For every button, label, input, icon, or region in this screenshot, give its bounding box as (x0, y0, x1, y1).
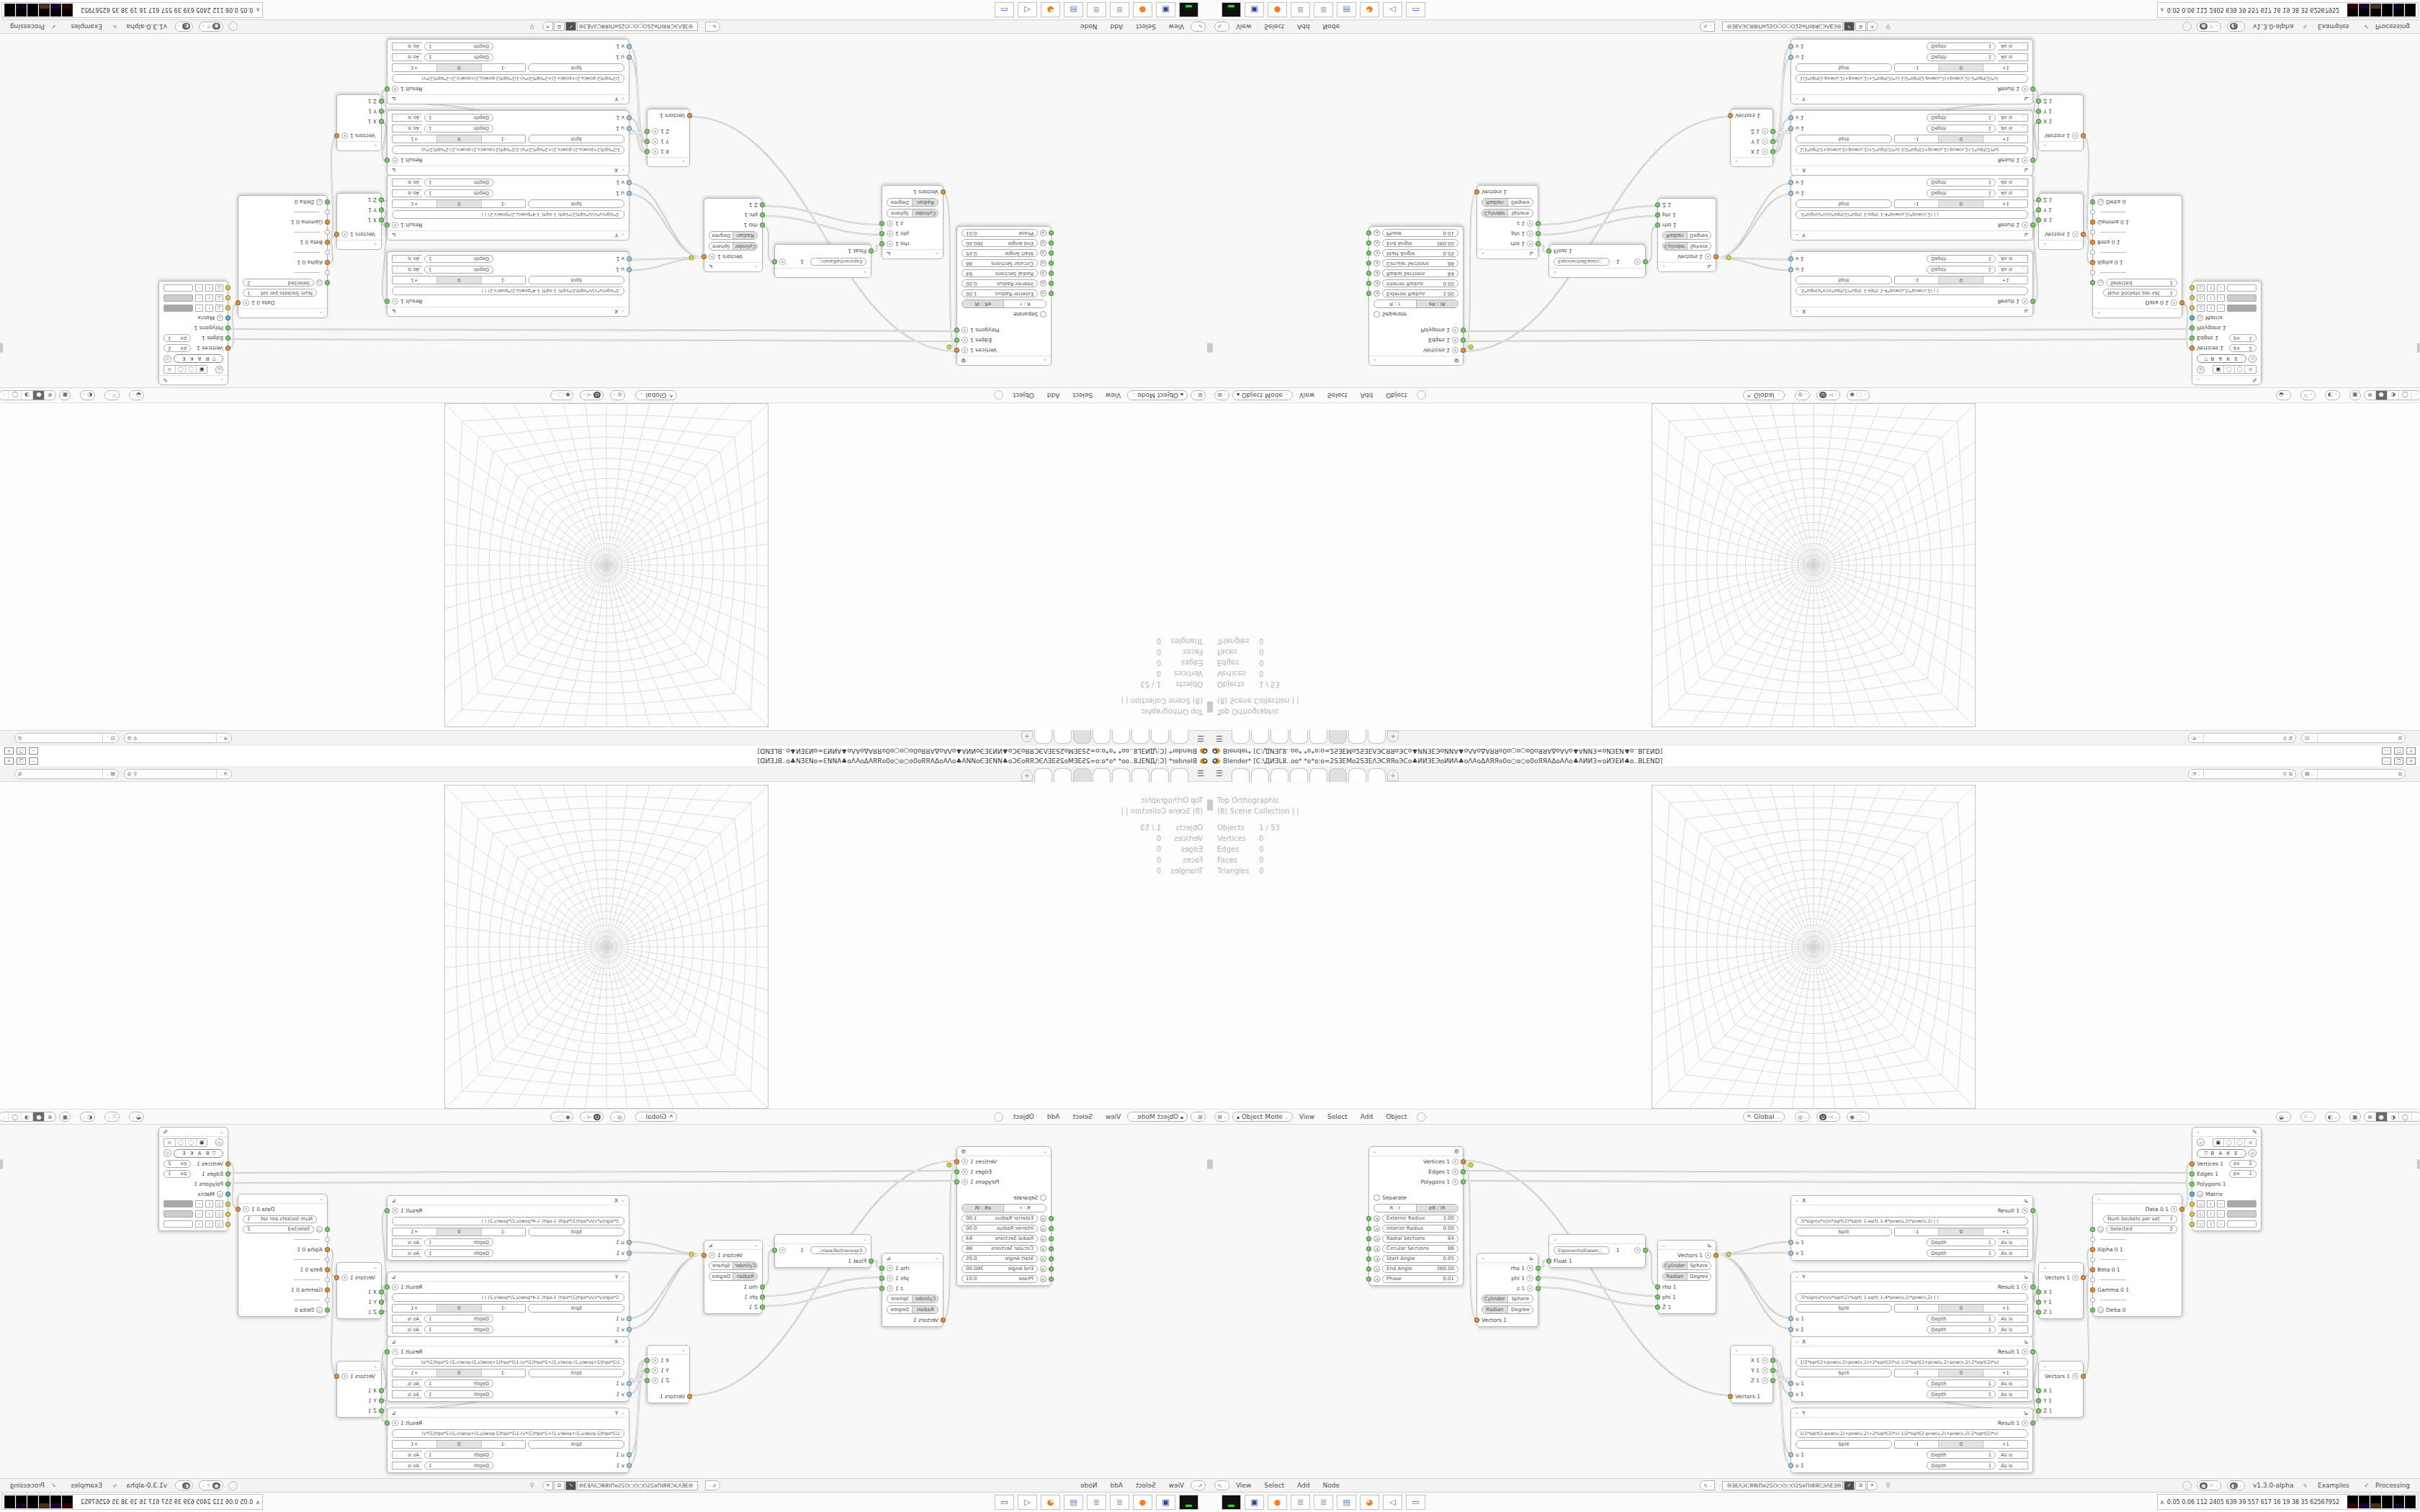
orange-socket[interactable] (702, 1253, 707, 1258)
editor-type-button[interactable]: ⊞⌄ (1191, 390, 1206, 400)
orange-socket[interactable] (2190, 1161, 2195, 1166)
green-socket[interactable] (2036, 1408, 2041, 1413)
menu-select[interactable]: Select (1129, 23, 1162, 30)
node-header[interactable]: ⌄Y⊾ (1791, 230, 2033, 240)
node-header[interactable]: ⌄ (337, 1263, 381, 1272)
node-header[interactable]: ⌄✎ (2192, 375, 2261, 384)
green-socket[interactable] (2090, 281, 2095, 286)
node-tree-name-field[interactable]: ΘЗЕΛЭСЯЯΙΠ¤2SO○O○O2S¤ΠΙЯЯСЭΛЕЗΘ (577, 22, 698, 32)
orange-socket[interactable] (2190, 346, 2195, 351)
formula-node-y-lower[interactable]: ⌄Y⊾Result 1▾1/2*sqrt(2-pow(u,2)+pow(v,2)… (1791, 1408, 2033, 1473)
add-workspace-button[interactable]: + (1387, 770, 1399, 781)
orange-socket[interactable] (2090, 261, 2095, 266)
orange-socket[interactable] (325, 1247, 330, 1252)
workspace-tab-1[interactable] (1170, 768, 1188, 782)
hollow-socket[interactable] (2090, 1237, 2095, 1242)
yellow-socket[interactable] (2190, 1212, 2195, 1217)
parent-tree-icon[interactable] (2182, 1481, 2192, 1490)
formula-node-x-upper[interactable]: ⌄X⊾Result 1▾.5*sign(u*v)/v*sqrt(2)*sqrt(… (1791, 1195, 2033, 1261)
minimize-button[interactable]: — (2382, 757, 2391, 765)
green-socket[interactable] (1655, 1305, 1660, 1310)
green-socket[interactable] (1366, 271, 1371, 276)
pin-icon[interactable]: ⚲ (529, 23, 534, 30)
orange-socket[interactable] (325, 1287, 330, 1292)
orange-socket[interactable] (334, 233, 339, 238)
menu-select[interactable]: Select (1066, 1113, 1099, 1120)
menu-select[interactable]: Select (1129, 1482, 1162, 1489)
green-socket[interactable] (2190, 326, 2195, 331)
workspace-tab-7[interactable] (1348, 768, 1366, 782)
green-socket[interactable] (645, 130, 650, 135)
fake-user-shield-button[interactable]: ✓ (1844, 1481, 1855, 1490)
workspace-tab-6[interactable] (1073, 730, 1091, 744)
workspace-tab-8[interactable] (1368, 768, 1386, 782)
hollow-socket[interactable] (2090, 230, 2095, 235)
blue-socket[interactable] (1788, 1251, 1793, 1256)
node-header[interactable]: ⌄ (2093, 1194, 2182, 1204)
blue-socket[interactable] (627, 256, 632, 261)
workspace-tab-7[interactable] (1348, 730, 1366, 744)
orange-socket[interactable] (2081, 1374, 2086, 1379)
parent-tree-icon[interactable] (2182, 22, 2192, 32)
green-socket[interactable] (760, 1284, 765, 1290)
reroute-dot[interactable] (1726, 1252, 1731, 1256)
taskbar-icon-notepad[interactable]: ≣ (1314, 1495, 1333, 1510)
examples-menu[interactable]: Examples (71, 23, 102, 30)
transform-orientation[interactable]: ⇱Global⌄ (1743, 1112, 1785, 1122)
orange-socket[interactable] (334, 134, 339, 139)
menu-select[interactable]: Select (1321, 392, 1354, 399)
menu-view[interactable]: View (1162, 23, 1191, 30)
workspace-tab-5[interactable] (1309, 768, 1327, 782)
data-switch-node[interactable]: ⌄Data 0 1▾Num Sockets per set1◷Selected2… (238, 195, 328, 318)
taskbar-icon-blender[interactable]: ◕ (1041, 2, 1060, 17)
hollow-socket[interactable] (2090, 1257, 2095, 1262)
yellow-socket[interactable] (225, 1212, 230, 1217)
blue-socket[interactable] (627, 1316, 632, 1321)
vector-in-node-upper[interactable]: ⌄Vectors 1▾X 1Y 1Z 1 (2038, 193, 2084, 250)
green-socket[interactable] (1366, 251, 1371, 256)
search-icon[interactable] (994, 1112, 1003, 1122)
pivot-point-button[interactable]: ◎⌄ (610, 390, 625, 400)
show-gizmo-button[interactable]: ◒⌄ (2276, 390, 2291, 400)
green-socket[interactable] (645, 1368, 650, 1373)
viewer-draw-node[interactable]: ⌄✎◎▣◯◯⊘▽B A K E⊙Vertices 1px2Edges 1px1P… (158, 281, 228, 385)
blue-socket[interactable] (627, 191, 632, 196)
taskbar-icon-window[interactable]: ▤ (1064, 2, 1083, 17)
orange-socket[interactable] (334, 1374, 339, 1379)
formula-node-x-upper[interactable]: ⌄X⊾Result 1▾.5*sign(u*v)/v*sqrt(2)*sqrt(… (1791, 251, 2033, 317)
mode-selector[interactable]: ▪Object Mode⌄ (1127, 390, 1188, 400)
node-header[interactable]: ⌄Y⊾ (387, 94, 629, 104)
menu-select[interactable]: Select (1258, 23, 1291, 30)
vector-out-node[interactable]: ⌄X 1▾Y 1▾Z 1▾Vectors 1 (647, 109, 690, 167)
green-socket[interactable] (2036, 218, 2041, 223)
orange-socket[interactable] (1461, 1159, 1466, 1164)
viewer-draw-node[interactable]: ⌄✎◎▣◯◯⊘▽B A K E⊙Vertices 1px2Edges 1px1P… (2192, 1127, 2262, 1231)
menu-view[interactable]: View (1099, 392, 1127, 399)
overlays-button[interactable]: ⤫⌄ (2300, 1112, 2316, 1122)
tree-type-icon[interactable]: ∿⌄ (1700, 1480, 1715, 1490)
copy-icon[interactable]: ⧉ (2398, 771, 2402, 777)
green-socket[interactable] (1655, 1284, 1660, 1290)
menu-object[interactable]: Object (1006, 392, 1040, 399)
add-workspace-button[interactable]: + (1387, 731, 1399, 742)
green-socket[interactable] (325, 1308, 330, 1313)
orange-socket[interactable] (2090, 240, 2095, 246)
green-socket[interactable] (2036, 1398, 2041, 1403)
vector-polar-output-node[interactable]: ⌄⊾rho 1▾phi 1▾z 1▾CylinderSphereRadianDe… (882, 185, 944, 259)
green-socket[interactable] (954, 1169, 959, 1174)
taskbar-icon-console[interactable]: ▂ (1222, 1495, 1241, 1510)
taskbar-icon-floppy-64[interactable]: ▣ (1245, 2, 1264, 17)
node-editor[interactable]: ⌄⚙Vertices 1▾Edges 1▾Polygons 1▾Separate… (0, 1125, 1210, 1478)
show-gizmo-button[interactable]: ◒⌄ (129, 390, 144, 400)
shading-mode-switch[interactable]: ⊕●◑◯⌄ (0, 390, 56, 400)
vector-polar-input-node[interactable]: ⌄⊾Vectors 1▾CylinderSphereRadianDegreerh… (704, 198, 763, 272)
mode-selector[interactable]: ▪Object Mode⌄ (1232, 1112, 1293, 1122)
proportional-edit-button[interactable]: ◉◯⌄ (1847, 1112, 1870, 1122)
node-header[interactable]: ⌄X⊾ (387, 1196, 629, 1205)
green-socket[interactable] (1366, 1277, 1371, 1282)
node-header[interactable]: ⌄Y⊾ (387, 1408, 629, 1418)
formula-node-x-lower[interactable]: ⌄X⊾Result 1▾1/2*sqrt(2+pow(u,2)-pow(v,2)… (1791, 1336, 2033, 1402)
node-header[interactable]: ⌄X⊾ (387, 166, 629, 175)
minimize-button[interactable]: — (2382, 747, 2391, 755)
editor-type-button[interactable]: ⊞⌄ (1191, 1112, 1206, 1122)
yellow-socket[interactable] (2190, 1202, 2195, 1207)
pin-icon[interactable]: ⚲ (1886, 1482, 1891, 1489)
green-socket[interactable] (645, 140, 650, 145)
green-socket[interactable] (1366, 282, 1371, 287)
vector-out-node[interactable]: ⌄X 1▾Y 1▾Z 1▾Vectors 1 (1730, 109, 1773, 167)
node-header[interactable]: ⌄ (2039, 141, 2083, 150)
green-socket[interactable] (879, 1286, 884, 1291)
green-socket[interactable] (1366, 261, 1371, 266)
blue-socket[interactable] (1788, 126, 1793, 131)
formula-node-y-upper[interactable]: ⌄Y⊾Result 1▾.5*sign(u*v)/u*sqrt(2)*sqrt(… (1791, 1272, 2033, 1337)
blue-socket[interactable] (1788, 55, 1793, 60)
hollow-socket[interactable] (2090, 210, 2095, 215)
vector-in-node-lower[interactable]: ⌄Vectors 1▾X 1Y 1Z 1 (2038, 94, 2084, 151)
hollow-socket[interactable] (2090, 251, 2095, 256)
pin-icon[interactable]: ⚲ (1886, 23, 1891, 30)
menu-node[interactable]: Node (1316, 23, 1346, 30)
close-button[interactable]: ✕ (2406, 747, 2416, 755)
green-socket[interactable] (1366, 1266, 1371, 1272)
node-header[interactable]: ⌄ (2039, 1362, 2083, 1371)
reroute-dot[interactable] (689, 256, 694, 260)
system-monitor-widget[interactable]: ⋏ 0.05 0.06 112 2405 639 39 557 617 16 1… (2157, 1494, 2419, 1510)
vector-polar-output-node[interactable]: ⌄⊾rho 1▾phi 1▾z 1▾CylinderSphereRadianDe… (1476, 1253, 1538, 1327)
hollow-socket[interactable] (325, 1297, 330, 1302)
workspace-tab-5[interactable] (1093, 730, 1111, 744)
view-layer-selector[interactable]: ▤⌄ ⧉ (2301, 769, 2406, 779)
menu-select[interactable]: Select (1066, 392, 1099, 399)
green-socket[interactable] (1536, 1266, 1541, 1271)
node-header[interactable]: ⌄X⊾ (1791, 1337, 2033, 1346)
green-socket[interactable] (2036, 1300, 2041, 1305)
node-header[interactable]: ⌄⊾ (1477, 249, 1538, 258)
orange-socket[interactable] (2090, 220, 2095, 225)
green-socket[interactable] (1461, 1179, 1466, 1184)
easing-node[interactable]: ⌄ExponentialEaseIn⌄ ◱1▾Float 1 (774, 1234, 871, 1268)
green-socket[interactable] (2030, 1349, 2035, 1354)
taskbar-icon-notepad[interactable]: ≣ (1110, 2, 1129, 17)
orange-socket[interactable] (1728, 1394, 1733, 1399)
node-header[interactable]: ⌄⊾ (1658, 1241, 1716, 1250)
blue-socket[interactable] (1788, 44, 1793, 49)
vector-polar-input-node[interactable]: ⌄⊾Vectors 1▾CylinderSphereRadianDegreerh… (704, 1240, 763, 1314)
copy-tree-button[interactable]: ⧉ (554, 22, 565, 32)
viewer-draw-node[interactable]: ⌄✎◎▣◯◯⊘▽B A K E⊙Vertices 1px2Edges 1px1P… (158, 1127, 228, 1231)
restore-button[interactable]: ❐ (2394, 757, 2403, 765)
green-socket[interactable] (1536, 1286, 1541, 1291)
copy-tree-button[interactable]: ⧉ (1855, 22, 1866, 32)
show-gizmo-button[interactable]: ◒⌄ (129, 1112, 144, 1122)
vector-in-node-lower[interactable]: ⌄Vectors 1▾X 1Y 1Z 1 (336, 1361, 382, 1418)
show-gizmo-button[interactable]: ◒⌄ (2276, 1112, 2291, 1122)
reroute-dot[interactable] (689, 1252, 694, 1256)
bake-button[interactable]: ▽B A K E (2197, 1149, 2246, 1158)
system-monitor-widget[interactable]: ⋏ 0.05 0.06 112 2405 639 39 557 617 16 1… (2157, 2, 2419, 18)
transform-orientation[interactable]: ⇱Global⌄ (1743, 390, 1785, 400)
workspace-tab-3[interactable] (1131, 730, 1149, 744)
blue-socket[interactable] (627, 1240, 632, 1245)
hollow-socket[interactable] (325, 1277, 330, 1282)
editor-type-button[interactable]: ⊞⌄ (1214, 390, 1229, 400)
workspace-tab-2[interactable] (1151, 730, 1169, 744)
orange-socket[interactable] (225, 1161, 230, 1166)
reroute-dot[interactable] (947, 1163, 951, 1167)
overlay-node-button[interactable]: ◐⌄ (175, 1480, 193, 1490)
node-header[interactable]: ⌄⚙ (957, 356, 1051, 365)
render-preview-button[interactable]: ▣ (59, 1112, 71, 1122)
shading-mode-switch[interactable]: ⊕●◑◯⌄ (2364, 390, 2420, 400)
workspace-tab-2[interactable] (1251, 730, 1269, 744)
menu-view[interactable]: View (1293, 392, 1321, 399)
easing-node[interactable]: ⌄ExponentialEaseIn⌄ ◱1▾Float 1 (1549, 1234, 1646, 1268)
easing-node[interactable]: ⌄ExponentialEaseIn⌄ ◱1▾Float 1 (1549, 244, 1646, 278)
blue-socket[interactable] (1788, 1240, 1793, 1245)
blue-socket[interactable] (1788, 191, 1793, 196)
green-socket[interactable] (2190, 336, 2195, 341)
reroute-dot[interactable] (1469, 1163, 1473, 1167)
pin-icon[interactable]: ⚲ (133, 771, 137, 777)
node-header[interactable]: ⌄Y⊾ (387, 1272, 629, 1282)
node-tree-name-field[interactable]: ΘЗЕΛЭСЯЯΙΠ¤2SO○O○O2S¤ΠΙЯЯСЭΛЕЗΘ (1722, 1481, 1843, 1490)
close-button[interactable]: ✕ (4, 747, 14, 755)
close-button[interactable]: ✕ (4, 757, 14, 765)
green-socket[interactable] (225, 1171, 230, 1176)
system-monitor-widget[interactable]: ⋏ 0.05 0.06 112 2405 639 39 557 617 16 1… (1, 1494, 263, 1510)
orange-socket[interactable] (1713, 1253, 1718, 1258)
green-socket[interactable] (1366, 1216, 1371, 1221)
node-editor[interactable]: ⌄⚙Vertices 1▾Edges 1▾Polygons 1▾Separate… (1210, 1125, 2420, 1478)
node-header[interactable]: ⌄Y⊾ (1791, 1272, 2033, 1282)
green-socket[interactable] (1655, 1295, 1660, 1300)
examples-menu[interactable]: Examples (2318, 23, 2349, 30)
circle-generator-node[interactable]: ⌄⚙Vertices 1▾Edges 1▾Polygons 1▾Separate… (956, 1146, 1052, 1286)
copy-icon[interactable]: ⧉ (18, 771, 22, 777)
green-socket[interactable] (2030, 1421, 2035, 1426)
blue-socket[interactable] (1788, 1452, 1793, 1457)
mode-selector[interactable]: ▪Object Mode⌄ (1127, 1112, 1188, 1122)
node-header[interactable]: ⌄✎ (159, 1128, 228, 1137)
menu-node[interactable]: Node (1074, 23, 1104, 30)
node-tree-name-field[interactable]: ΘЗЕΛЭСЯЯΙΠ¤2SO○O○O2S¤ΠΙЯЯСЭΛЕЗΘ (1722, 22, 1843, 32)
overlays-button[interactable]: ⤫⌄ (2300, 390, 2316, 400)
processing-toggle[interactable]: Processing (10, 1482, 45, 1489)
node-header[interactable]: ⌄ (337, 1362, 381, 1371)
workspace-tab-4[interactable] (1290, 768, 1308, 782)
tree-type-icon[interactable]: ∿⌄ (705, 22, 720, 32)
copy-icon[interactable]: ⧉ (127, 735, 131, 741)
blue-socket[interactable] (627, 1392, 632, 1397)
vector-out-node[interactable]: ⌄X 1▾Y 1▾Z 1▾Vectors 1 (647, 1345, 690, 1403)
copy-icon[interactable]: ⧉ (127, 771, 131, 777)
overlays-button[interactable]: ⤫⌄ (104, 390, 120, 400)
node-header[interactable]: ⌄⊾ (1658, 262, 1716, 271)
green-socket[interactable] (1366, 241, 1371, 246)
render-preview-button[interactable]: ▣ (59, 390, 71, 400)
processing-toggle[interactable]: Processing (10, 23, 45, 30)
processing-toggle[interactable]: Processing (2375, 23, 2410, 30)
vector-in-node-upper[interactable]: ⌄Vectors 1▾X 1Y 1Z 1 (336, 1262, 382, 1319)
copy-icon[interactable]: ⧉ (18, 735, 22, 741)
taskbar-icon-notepad[interactable]: ≣ (1087, 1495, 1106, 1510)
scene-selector[interactable]: ◔⌄ ⚲⧉ (124, 769, 232, 779)
proportional-edit-button[interactable]: ◉◯⌄ (1847, 390, 1870, 400)
blue-socket[interactable] (1788, 256, 1793, 261)
node-header[interactable]: ⌄X⊾ (387, 1337, 629, 1346)
workspace-tab-4[interactable] (1112, 730, 1130, 744)
view-layer-selector[interactable]: ▤⌄ ⧉ (2301, 733, 2406, 743)
orange-socket[interactable] (334, 1275, 339, 1280)
formula-node-x-lower[interactable]: ⌄X⊾Result 1▾1/2*sqrt(2+pow(u,2)-pow(v,2)… (387, 110, 629, 176)
green-socket[interactable] (1049, 1236, 1054, 1241)
pin-icon[interactable]: ⚲ (2283, 735, 2287, 741)
node-header[interactable]: ⌄⚙ (1369, 356, 1463, 365)
green-socket[interactable] (2036, 109, 2041, 114)
taskbar-icon-window[interactable]: ▤ (1064, 1495, 1083, 1510)
workspace-tab-3[interactable] (1131, 768, 1149, 782)
green-socket[interactable] (385, 87, 390, 92)
blue-socket[interactable] (1788, 267, 1793, 272)
xray-button[interactable]: ◐⌄ (80, 1112, 95, 1122)
green-socket[interactable] (1366, 1246, 1371, 1251)
taskbar-icon-firefox[interactable]: ● (1268, 2, 1287, 17)
proportional-edit-button[interactable]: ◉◯⌄ (550, 1112, 573, 1122)
node-header[interactable]: ⌄X⊾ (1791, 166, 2033, 175)
viewport-3d[interactable]: Top Orthographic (8) Scene Collection | … (0, 782, 1210, 1109)
workspace-tab-7[interactable] (1054, 768, 1072, 782)
formula-node-y-upper[interactable]: ⌄Y⊾Result 1▾.5*sign(u*v)/u*sqrt(2)*sqrt(… (1791, 175, 2033, 240)
vector-in-node-lower[interactable]: ⌄Vectors 1▾X 1Y 1Z 1 (336, 94, 382, 151)
green-socket[interactable] (1366, 1226, 1371, 1231)
unlink-tree-button[interactable]: ✕ (542, 22, 553, 32)
green-socket[interactable] (379, 1290, 384, 1295)
orange-socket[interactable] (954, 348, 959, 354)
taskbar-icon-speaker[interactable]: ◁ (1383, 1495, 1402, 1510)
menu-view[interactable]: View (1099, 1113, 1127, 1120)
restore-button[interactable]: ❐ (17, 747, 26, 755)
examples-menu[interactable]: Examples (2318, 1482, 2349, 1489)
green-socket[interactable] (1366, 292, 1371, 297)
node-header[interactable]: ⌄⚙ (1369, 1147, 1463, 1156)
reroute-dot[interactable] (1726, 256, 1731, 260)
green-socket[interactable] (954, 1179, 959, 1184)
node-header[interactable]: ⌄ (775, 268, 871, 277)
formula-node-x-lower[interactable]: ⌄X⊾Result 1▾1/2*sqrt(2+pow(u,2)-pow(v,2)… (1791, 110, 2033, 176)
add-workspace-button[interactable]: + (1021, 770, 1033, 781)
vector-out-node[interactable]: ⌄X 1▾Y 1▾Z 1▾Vectors 1 (1730, 1345, 1773, 1403)
taskbar-icon-media[interactable]: ▭ (995, 1495, 1014, 1510)
blue-socket[interactable] (627, 1251, 632, 1256)
xray-button[interactable]: ◐⌄ (2325, 390, 2340, 400)
blue-socket[interactable] (1788, 180, 1793, 185)
overlay-node-button[interactable]: ◐⌄ (2227, 1480, 2245, 1490)
green-socket[interactable] (385, 223, 390, 228)
green-socket[interactable] (879, 232, 884, 237)
viewport-scroll-nub[interactable] (1210, 701, 1213, 713)
scene-selector[interactable]: ◔⌄ ⚲⧉ (2188, 769, 2296, 779)
vector-polar-output-node[interactable]: ⌄⊾rho 1▾phi 1▾z 1▾CylinderSphereRadianDe… (1476, 185, 1538, 259)
green-socket[interactable] (954, 328, 959, 333)
vector-in-node-upper[interactable]: ⌄Vectors 1▾X 1Y 1Z 1 (336, 193, 382, 250)
green-socket[interactable] (379, 1300, 384, 1305)
yellow-socket[interactable] (2190, 296, 2195, 301)
blue-socket[interactable] (627, 44, 632, 49)
data-switch-node[interactable]: ⌄Data 0 1▾Num Sockets per set1◷Selected2… (2092, 195, 2182, 318)
blue-socket[interactable] (1788, 1327, 1793, 1332)
green-socket[interactable] (385, 300, 390, 305)
unlink-tree-button[interactable]: ✕ (1867, 1481, 1878, 1490)
blue-socket[interactable] (1788, 1316, 1793, 1321)
menu-view[interactable]: View (1229, 1482, 1258, 1489)
orange-socket[interactable] (954, 1159, 959, 1164)
green-socket[interactable] (1655, 223, 1660, 228)
vector-in-node-lower[interactable]: ⌄Vectors 1▾X 1Y 1Z 1 (2038, 1361, 2084, 1418)
blue-socket[interactable] (627, 115, 632, 120)
fake-user-shield-button[interactable]: ✓ (565, 1481, 576, 1490)
blue-socket[interactable] (627, 1452, 632, 1457)
workspace-tab-6[interactable] (1073, 768, 1091, 782)
snap-button[interactable]: ∪⊣⌄ (1816, 390, 1840, 400)
fake-user-shield-button[interactable]: ✓ (1844, 22, 1855, 32)
blue-socket[interactable] (1788, 1392, 1793, 1397)
taskbar-icon-notepad[interactable]: ≣ (1110, 1495, 1129, 1510)
node-header[interactable]: ⌄ (337, 240, 381, 249)
view-layer-selector[interactable]: ▤⌄ ⧉ (14, 769, 119, 779)
node-header[interactable]: ⌄X⊾ (1791, 1196, 2033, 1205)
green-socket[interactable] (1366, 1256, 1371, 1261)
workspace-tab-1[interactable] (1232, 730, 1250, 744)
menu-icon[interactable]: ☰ (1216, 734, 1225, 742)
orange-socket[interactable] (325, 1267, 330, 1272)
shading-mode-switch[interactable]: ⊕●◑◯⌄ (2364, 1112, 2420, 1122)
reroute-dot[interactable] (947, 345, 951, 349)
viewport-3d[interactable]: Top Orthographic (8) Scene Collection | … (1210, 782, 2420, 1109)
node-header[interactable]: ⌄ (2039, 1263, 2083, 1272)
node-header[interactable]: ⌄X⊾ (387, 307, 629, 316)
examples-menu[interactable]: Examples (71, 1482, 102, 1489)
blue-socket[interactable] (627, 126, 632, 131)
unlink-tree-button[interactable]: ✕ (542, 1481, 553, 1490)
green-socket[interactable] (225, 1182, 230, 1187)
green-socket[interactable] (1655, 213, 1660, 218)
green-socket[interactable] (1366, 1236, 1371, 1241)
